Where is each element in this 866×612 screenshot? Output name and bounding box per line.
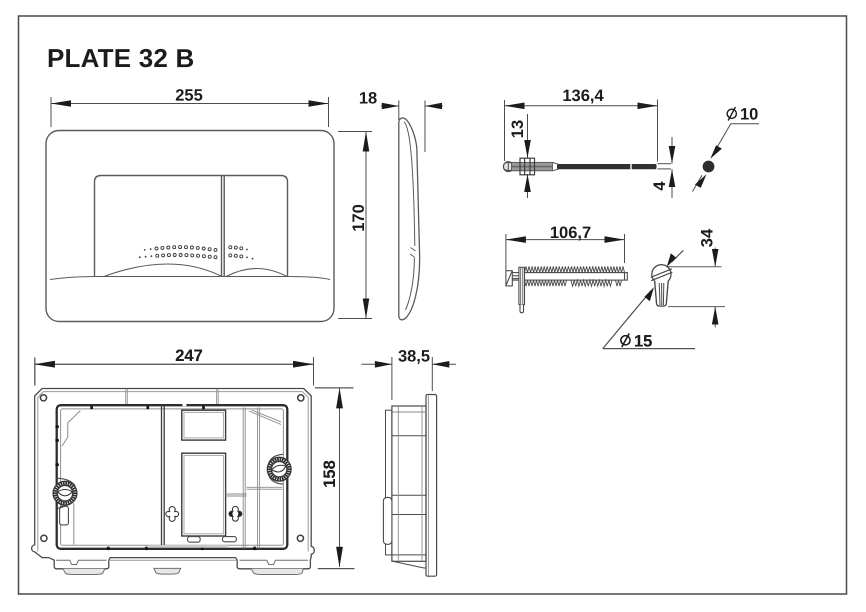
svg-text:136,4: 136,4 — [562, 87, 604, 105]
svg-text:10: 10 — [740, 106, 758, 124]
svg-text:34: 34 — [699, 228, 717, 247]
svg-text:4: 4 — [651, 181, 669, 191]
svg-text:247: 247 — [175, 347, 203, 365]
svg-text:15: 15 — [634, 333, 652, 351]
svg-text:38,5: 38,5 — [398, 347, 430, 365]
svg-text:18: 18 — [359, 89, 377, 107]
svg-text:255: 255 — [175, 87, 203, 105]
svg-text:13: 13 — [509, 120, 527, 138]
svg-text:PLATE 32 B: PLATE 32 B — [47, 43, 194, 73]
svg-text:170: 170 — [350, 204, 368, 232]
svg-text:106,7: 106,7 — [550, 224, 591, 242]
svg-text:158: 158 — [321, 460, 339, 488]
